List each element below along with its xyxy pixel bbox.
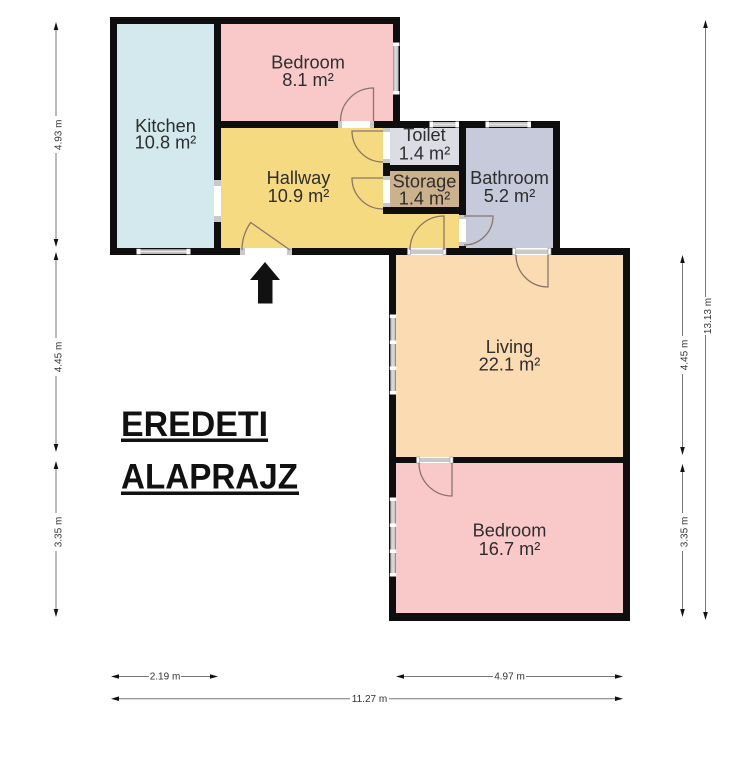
svg-text:Bathroom: Bathroom	[470, 168, 549, 188]
svg-text:3.35 m: 3.35 m	[680, 517, 691, 548]
svg-text:5.2 m²: 5.2 m²	[484, 186, 536, 206]
svg-text:16.7 m²: 16.7 m²	[479, 539, 541, 559]
svg-text:4.93 m: 4.93 m	[54, 120, 65, 151]
svg-text:Toilet: Toilet	[403, 125, 445, 145]
svg-text:4.45 m: 4.45 m	[680, 340, 691, 371]
svg-text:Hallway: Hallway	[267, 168, 332, 188]
svg-text:1.4 m²: 1.4 m²	[399, 189, 451, 209]
svg-text:10.9 m²: 10.9 m²	[268, 186, 330, 206]
svg-text:EREDETI: EREDETI	[121, 405, 268, 444]
svg-text:10.8 m²: 10.8 m²	[135, 133, 197, 153]
svg-text:Bedroom: Bedroom	[473, 521, 547, 541]
svg-text:22.1 m²: 22.1 m²	[479, 355, 541, 375]
svg-text:13.13 m: 13.13 m	[703, 298, 714, 334]
svg-text:4.45 m: 4.45 m	[54, 342, 65, 373]
svg-text:8.1 m²: 8.1 m²	[282, 70, 334, 90]
svg-text:ALAPRAJZ: ALAPRAJZ	[121, 458, 298, 497]
svg-text:2.19 m: 2.19 m	[150, 672, 181, 683]
svg-text:11.27 m: 11.27 m	[352, 694, 387, 705]
svg-text:4.97 m: 4.97 m	[494, 672, 525, 683]
svg-text:3.35 m: 3.35 m	[54, 517, 65, 548]
svg-text:1.4 m²: 1.4 m²	[399, 144, 451, 164]
